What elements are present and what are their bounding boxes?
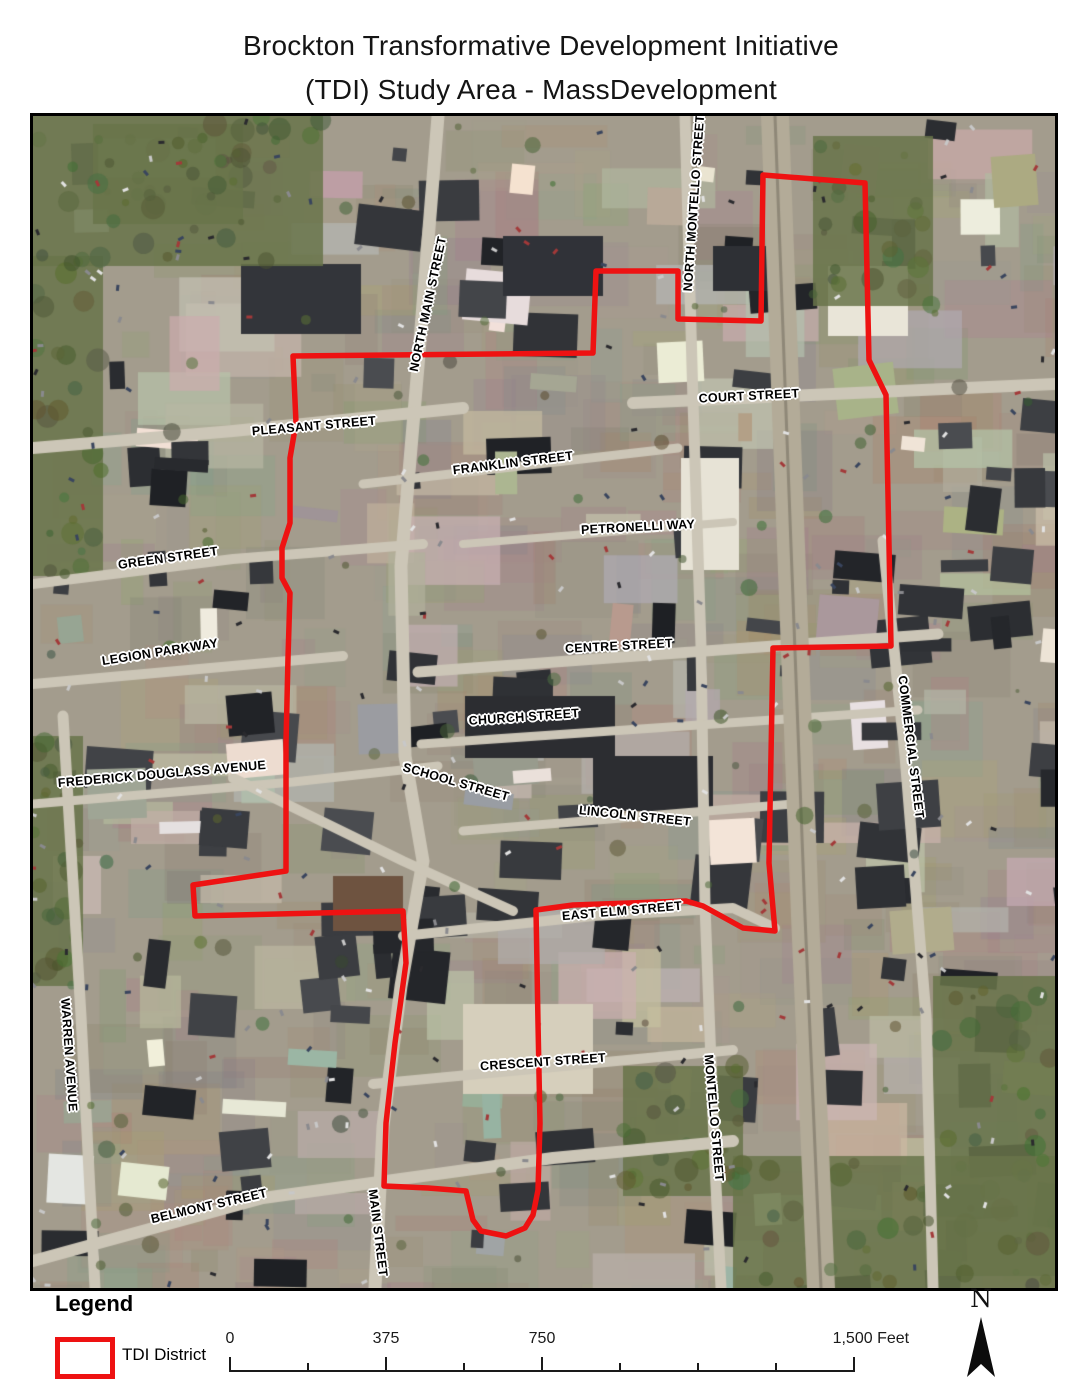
scale-label: 375 <box>373 1330 400 1348</box>
scale-label: 750 <box>529 1330 556 1348</box>
street-label: PLEASANT STREET <box>251 414 376 439</box>
street-label: CRESCENT STREET <box>480 1051 607 1074</box>
street-label: FREDERICK DOUGLASS AVENUE <box>57 758 266 790</box>
tdi-district-label: TDI District <box>122 1345 206 1365</box>
map-frame: NORTH MAIN STREETNORTH MONTELLO STREETCO… <box>30 113 1058 1291</box>
street-label: NORTH MAIN STREET <box>407 235 449 373</box>
street-label: NORTH MONTELLO STREET <box>681 114 707 292</box>
map-title-line1: Brockton Transformative Development Init… <box>0 30 1082 62</box>
legend-heading: Legend <box>55 1291 133 1317</box>
street-label: BELMONT STREET <box>150 1186 269 1226</box>
street-label: SCHOOL STREET <box>401 760 511 804</box>
street-label: PETRONELLI WAY <box>581 517 696 537</box>
scale-tick <box>307 1363 309 1372</box>
scale-bar: 03757501,500 Feet <box>230 1330 854 1376</box>
scale-tick <box>697 1363 699 1372</box>
street-label: CENTRE STREET <box>565 636 674 656</box>
north-arrow-icon <box>962 1317 1000 1383</box>
street-label: MONTELLO STREET <box>701 1054 726 1182</box>
scale-tick <box>541 1357 543 1372</box>
scale-label: 0 <box>226 1330 235 1348</box>
north-label: N <box>946 1284 1016 1313</box>
scale-tick <box>775 1363 777 1372</box>
map-title-line2: (TDI) Study Area - MassDevelopment <box>0 74 1082 106</box>
street-label: CHURCH STREET <box>468 706 580 728</box>
scale-tick <box>619 1363 621 1372</box>
street-label: LEGION PARKWAY <box>101 636 219 668</box>
street-label: COURT STREET <box>698 386 799 405</box>
scale-tick <box>463 1363 465 1372</box>
street-label: WARREN AVENUE <box>58 998 80 1112</box>
street-label: MAIN STREET <box>366 1188 391 1277</box>
street-label: EAST ELM STREET <box>561 899 682 923</box>
scale-tick <box>853 1357 855 1372</box>
tdi-district-swatch <box>55 1337 115 1379</box>
street-label: COMMERCIAL STREET <box>895 675 926 819</box>
street-label: LINCOLN STREET <box>578 803 691 829</box>
north-arrow: N <box>946 1284 1016 1396</box>
street-label: FRANKLIN STREET <box>452 449 574 478</box>
street-labels-layer: NORTH MAIN STREETNORTH MONTELLO STREETCO… <box>33 116 1055 1288</box>
scale-label: 1,500 Feet <box>833 1330 910 1348</box>
street-label: GREEN STREET <box>117 544 219 572</box>
scale-tick <box>229 1357 231 1372</box>
scale-tick <box>385 1357 387 1372</box>
